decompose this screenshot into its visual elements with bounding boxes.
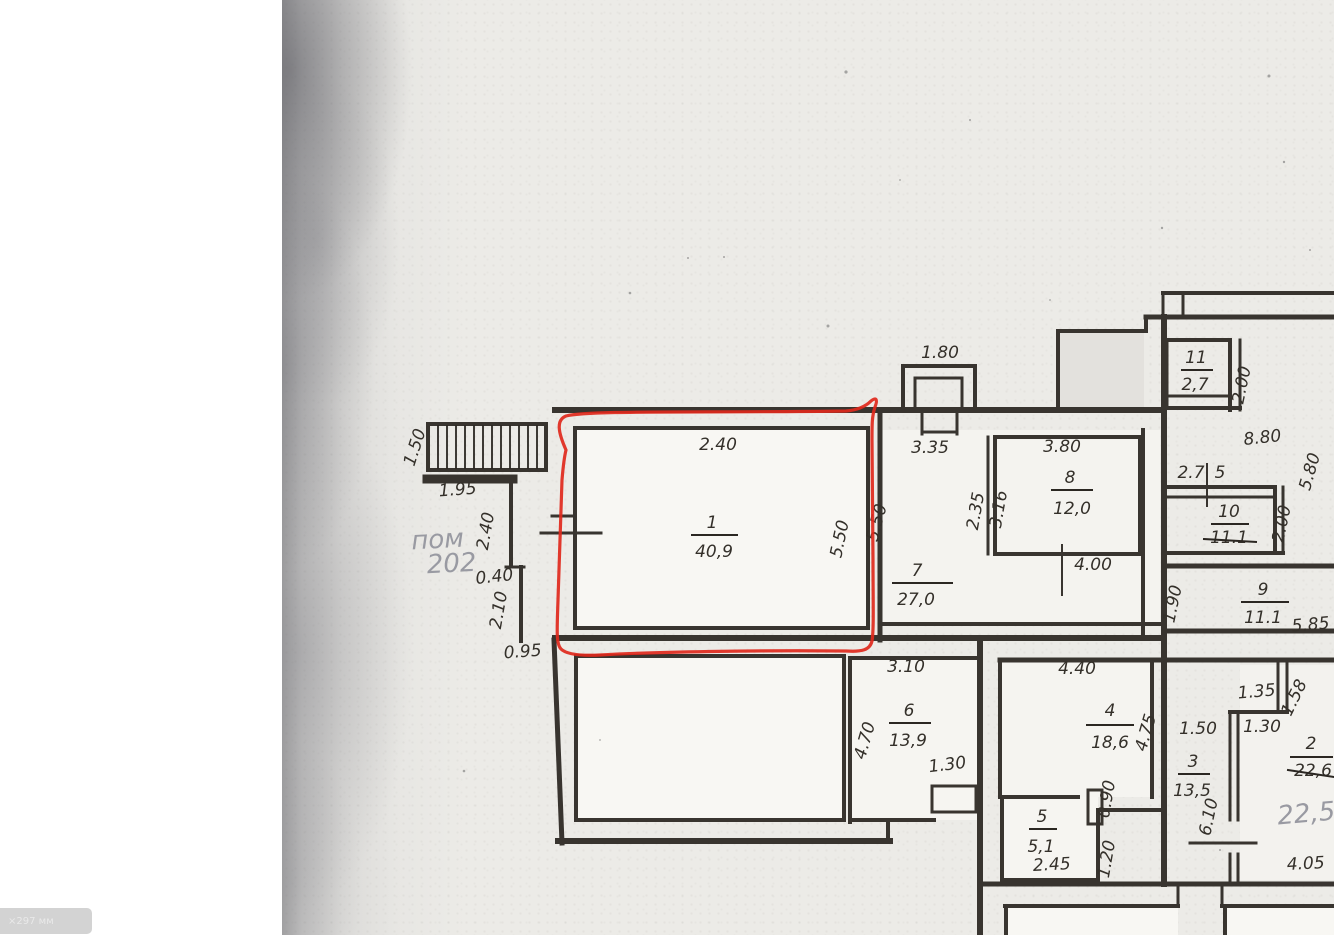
- room-7-number: 7: [912, 561, 923, 581]
- dim-4-00: 4.00: [1074, 555, 1112, 575]
- dim-3-10: 3.10: [887, 657, 925, 677]
- dim-2-40-left: 2.40: [473, 511, 499, 552]
- room-10-area-crossed: 11.1: [1210, 528, 1248, 548]
- dim-1-50-b: 1.50: [1179, 719, 1217, 739]
- dim-2-10: 2.10: [486, 590, 512, 631]
- room-5-number: 5: [1037, 807, 1048, 827]
- room-2-number: 2: [1306, 734, 1317, 754]
- room-7-area: 27,0: [897, 590, 935, 610]
- room-8-number: 8: [1065, 468, 1076, 488]
- dim-4-05: 4.05: [1286, 853, 1325, 875]
- pencil-area-22-5: 22,5: [1276, 797, 1334, 832]
- scanned-floor-plan-page: 1.80 2.40 5.50 5.50 3.35 3.80 2.35 3.16 …: [0, 0, 1334, 935]
- room-8-area: 12,0: [1053, 499, 1091, 519]
- room-1-area: 40,9: [695, 542, 733, 562]
- room-4-number: 4: [1105, 701, 1116, 721]
- room-9-area: 11.1: [1244, 608, 1282, 628]
- dim-2-00-a: 2.00: [1228, 364, 1255, 405]
- dim-8-80: 8.80: [1243, 426, 1283, 450]
- dim-1-30-b: 1.30: [1243, 717, 1281, 737]
- room-11-area: 2,7: [1181, 375, 1208, 395]
- dim-2-7: 2.7: [1177, 463, 1204, 483]
- room-5-area: 5,1: [1027, 837, 1054, 857]
- room-10-number: 10: [1218, 502, 1240, 522]
- dim-0-95: 0.95: [503, 641, 542, 664]
- dim-6-10: 6.10: [1195, 796, 1222, 837]
- room-4-area: 18,6: [1091, 733, 1129, 753]
- dim-3-80: 3.80: [1043, 437, 1081, 457]
- room-1-number: 1: [707, 513, 718, 533]
- dim-0-40: 0.40: [475, 565, 515, 589]
- room-6-area: 13,9: [889, 731, 927, 751]
- room-11-number: 11: [1185, 348, 1207, 368]
- dim-3-35: 3.35: [911, 438, 949, 458]
- corner-watermark-badge: ×297 мм: [0, 908, 92, 934]
- dim-2-40-top: 2.40: [699, 435, 737, 455]
- dim-5: 5: [1215, 463, 1226, 483]
- corner-watermark-text: ×297 мм: [0, 916, 54, 927]
- dim-5-80: 5.80: [1295, 451, 1325, 493]
- dim-1-80: 1.80: [921, 343, 959, 363]
- dim-2-00-b: 2.00: [1268, 503, 1295, 544]
- room-3-number: 3: [1188, 752, 1199, 772]
- floor-plan-drawing: 1.80 2.40 5.50 5.50 3.35 3.80 2.35 3.16 …: [0, 0, 1334, 935]
- room-fills: [575, 333, 1334, 935]
- room-6-number: 6: [904, 701, 915, 721]
- pencil-note-202: 202: [426, 548, 477, 581]
- dim-5-85: 5.85: [1291, 613, 1330, 636]
- dim-1-50-stairs: 1.50: [400, 426, 431, 468]
- room-3-area: 13,5: [1173, 781, 1211, 801]
- dim-1-35: 1.35: [1237, 680, 1276, 703]
- stair-hatching: [438, 426, 537, 468]
- dim-1-95: 1.95: [438, 479, 477, 502]
- room-9-number: 9: [1258, 580, 1269, 600]
- dim-2-45: 2.45: [1032, 854, 1071, 876]
- dim-4-40: 4.40: [1058, 659, 1096, 679]
